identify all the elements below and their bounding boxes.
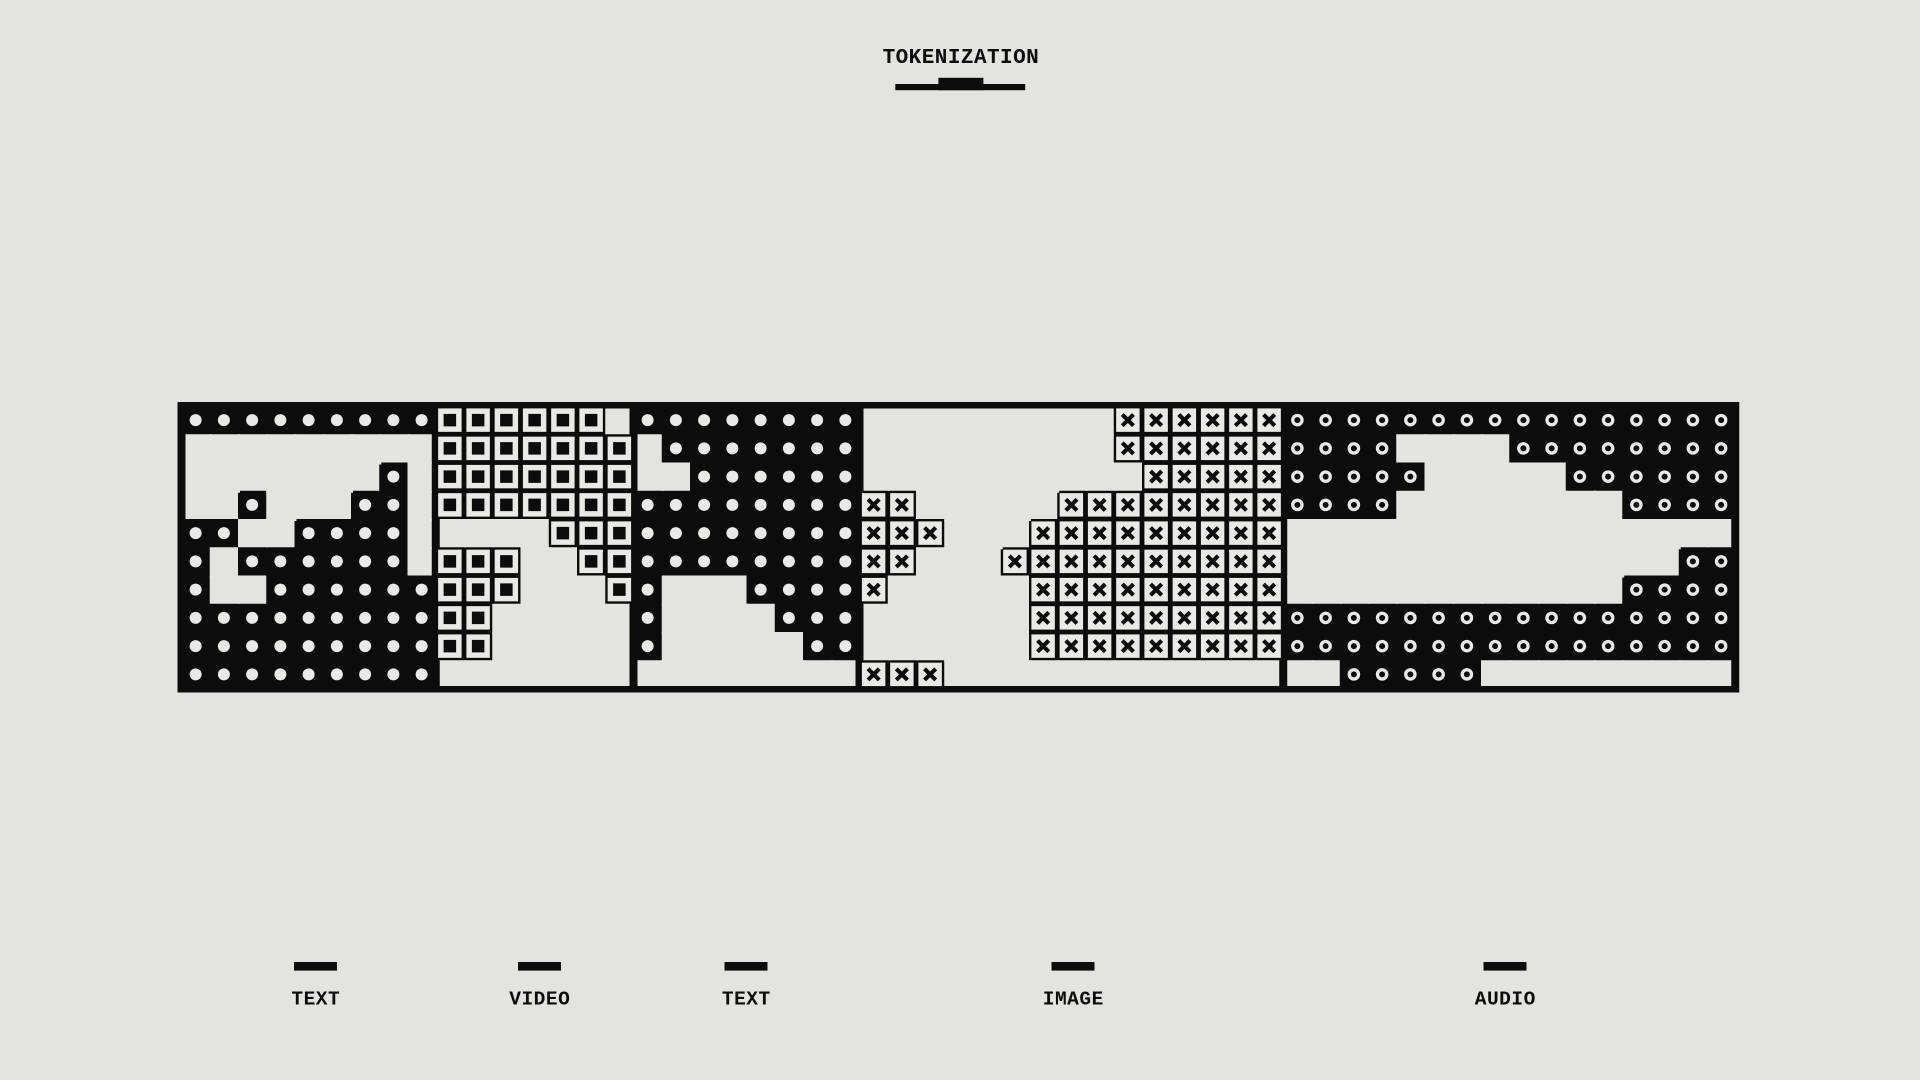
- svg-text:IMAGE: IMAGE: [1043, 989, 1104, 1011]
- svg-text:TEXT: TEXT: [291, 989, 340, 1011]
- svg-text:AUDIO: AUDIO: [1475, 989, 1536, 1011]
- svg-text:VIDEO: VIDEO: [509, 989, 570, 1011]
- svg-text:TEXT: TEXT: [722, 989, 771, 1011]
- svg-text:TOKENIZATION: TOKENIZATION: [883, 47, 1040, 70]
